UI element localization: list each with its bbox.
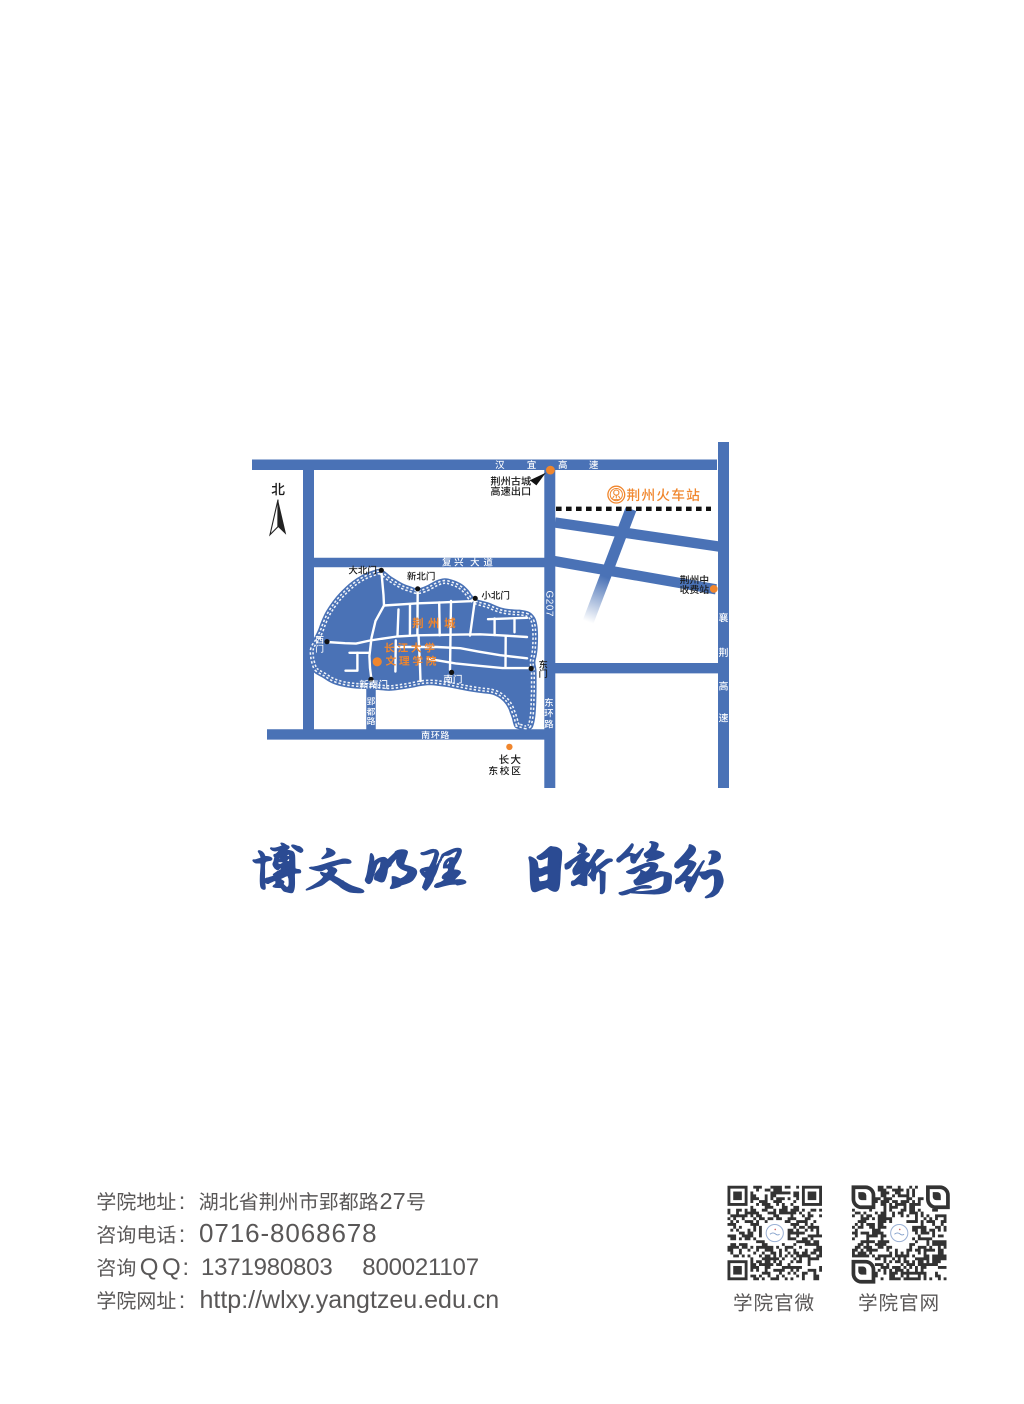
svg-text:800021107: 800021107 (362, 1254, 479, 1281)
svg-text::: : (179, 1221, 186, 1247)
svg-text:27: 27 (380, 1188, 406, 1214)
svg-text:0716-8068678: 0716-8068678 (199, 1218, 378, 1248)
svg-text:1371980803: 1371980803 (201, 1254, 332, 1281)
svg-text::: : (179, 1188, 186, 1214)
svg-text::: : (179, 1287, 186, 1313)
svg-text::: : (183, 1254, 190, 1280)
svg-text:QQ: QQ (140, 1254, 184, 1281)
svg-text:http://wlxy.yangtzeu.edu.cn: http://wlxy.yangtzeu.edu.cn (200, 1286, 500, 1314)
